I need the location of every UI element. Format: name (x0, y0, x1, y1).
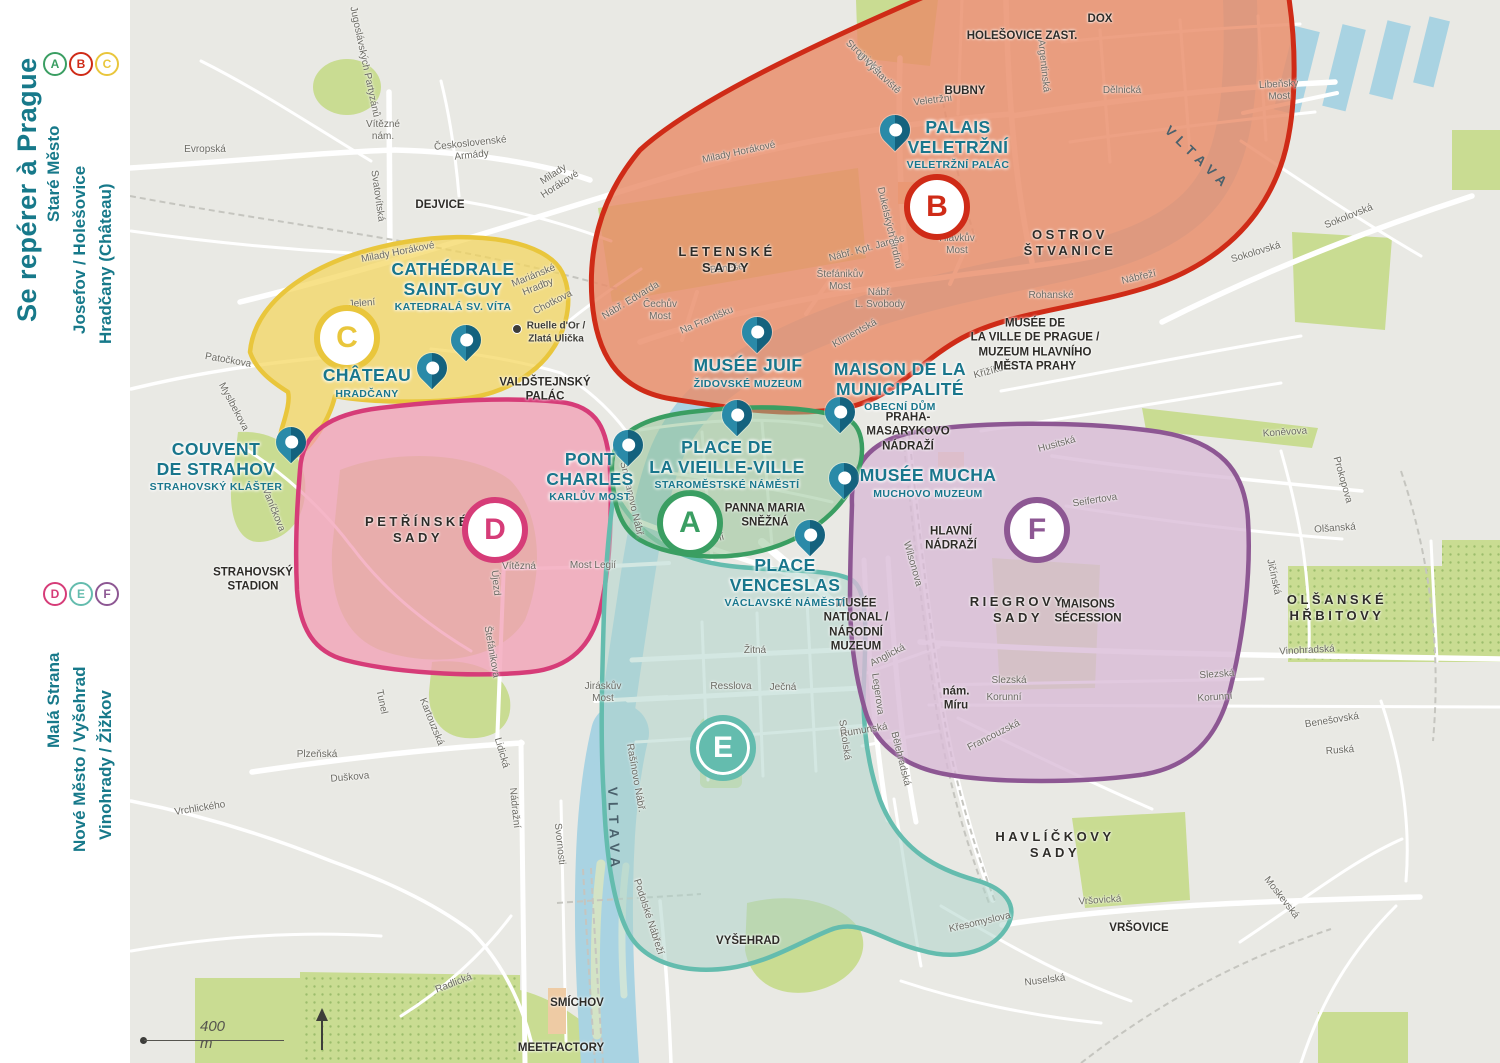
street-label: Vítězné nám. (366, 119, 400, 143)
poi-subtitle: HRADČANY (323, 388, 411, 400)
street-label: Resslova (710, 681, 751, 693)
legend-badge-e: E (69, 582, 93, 606)
street-label: Evropská (184, 144, 226, 156)
street-label: Žitná (744, 645, 766, 657)
place-label: RIEGROVY SADY (970, 594, 1067, 627)
legend-label-vinohrady-zizkov: Vinohrady / Žižkov (96, 690, 116, 840)
zone-badge-d: D (462, 497, 528, 563)
poi-name: MAISON DE LA MUNICIPALITÉ (834, 360, 966, 399)
street-label-bridge: Jiráskův Most (585, 681, 622, 705)
place-label: nám. Míru (943, 685, 970, 714)
poi-maison-municipalite: MAISON DE LA MUNICIPALITÉOBECNÍ DŮM (834, 360, 966, 413)
poi-subtitle: VÁCLAVSKÉ NÁMĚSTÍ (725, 597, 846, 609)
poi-musee-juif: MUSÉE JUIFŽIDOVSKÉ MUZEUM (693, 356, 802, 390)
street-label: Plzeňská (297, 749, 338, 761)
street-label: Slezská (991, 675, 1026, 687)
place-label: DOX (1088, 12, 1113, 26)
poi-subtitle: MUCHOVO MUZEUM (860, 488, 997, 500)
poi-subtitle: OBECNÍ DŮM (834, 401, 966, 413)
legend-badge-c: C (95, 52, 119, 76)
scale-label: 400 m (200, 1018, 225, 1052)
zone-badge-d-letter: D (484, 513, 506, 547)
poi-musee-mucha: MUSÉE MUCHAMUCHOVO MUZEUM (860, 466, 997, 500)
poi-name: MUSÉE JUIF (693, 356, 802, 376)
place-label: VRŠOVICE (1109, 921, 1168, 935)
street-label: Vítězná (502, 561, 536, 573)
poi-name: COUVENT DE STRAHOV (150, 440, 283, 479)
base-map (0, 0, 1500, 1063)
legend-badge-a: A (43, 52, 67, 76)
poi-palais-veletrzni: PALAIS VELETRŽNÍVELETRŽNÍ PALÁC (907, 118, 1010, 171)
legend-label-hradcany: Hradčany (Château) (96, 183, 116, 344)
zone-badge-e-letter: E (713, 731, 733, 765)
place-label: MAISONS SÉCESSION (1054, 598, 1121, 627)
zone-badge-f-letter: F (1028, 513, 1046, 547)
poi-name: CHÂTEAU (323, 366, 411, 386)
place-label: HAVLÍČKOVY SADY (995, 829, 1114, 862)
street-label: Ruská (1325, 744, 1354, 758)
place-label: STRAHOVSKÝ STADION (213, 566, 293, 595)
place-label: HLAVNÍ NÁDRAŽÍ (925, 525, 977, 554)
legend-label-mala-strana: Malá Strana (44, 653, 64, 748)
street-label: Dělnická (1103, 85, 1141, 97)
zone-badge-a: A (657, 490, 723, 556)
legend-label-stare-mesto: Staré Město (44, 126, 64, 222)
place-label: BUBNY (945, 84, 986, 98)
place-label: PRAHA- MASARYKOVO NÁDRAŽÍ (866, 410, 949, 453)
poi-subtitle: KARLŮV MOST (546, 491, 633, 503)
map-title: Se repérer à Prague (12, 57, 43, 322)
river-label-vltava: VLTAVA (605, 787, 623, 873)
place-label: DEJVICE (415, 198, 464, 212)
legend-badge-b: B (69, 52, 93, 76)
north-arrow-shaft (321, 1020, 323, 1050)
poi-name: PLACE VENCESLAS (725, 556, 846, 595)
street-label: Korunní (1197, 691, 1233, 705)
place-label-golden-lane: Ruelle d'Or / Zlatá Ulička (527, 321, 586, 346)
golden-lane-dot (512, 324, 522, 334)
poi-subtitle: ŽIDOVSKÉ MUZEUM (693, 378, 802, 390)
poi-vieille-ville: PLACE DE LA VIEILLE-VILLESTAROMĚSTSKÉ NÁ… (649, 438, 804, 491)
place-label: PETŘÍNSKÉ SADY (365, 514, 471, 547)
poi-name: PALAIS VELETRŽNÍ (907, 118, 1010, 157)
place-label: PANNA MARIA SNĚŽNÁ (725, 502, 806, 531)
place-label: MUSÉE DE LA VILLE DE PRAGUE / MUZEUM HLA… (971, 316, 1100, 374)
place-label: OSTROV ŠTVANICE (1024, 227, 1117, 260)
street-label: Ječná (770, 682, 797, 694)
poi-couvent-strahov: COUVENT DE STRAHOVSTRAHOVSKÝ KLÁŠTER (150, 440, 283, 493)
legend-label-josefov-holesovice: Josefov / Holešovice (70, 166, 90, 334)
zone-badge-a-letter: A (679, 506, 701, 540)
poi-pont-charles: PONT CHARLESKARLŮV MOST (546, 450, 633, 503)
poi-name: MUSÉE MUCHA (860, 466, 997, 486)
poi-subtitle: STRAHOVSKÝ KLÁŠTER (150, 481, 283, 493)
street-label: Most Legií (570, 560, 616, 572)
street-label: Nábř. L. Svobody (855, 287, 905, 311)
poi-chateau: CHÂTEAUHRADČANY (323, 366, 411, 400)
poi-name: PLACE DE LA VIEILLE-VILLE (649, 438, 804, 477)
street-label-bridge: Čechův Most (643, 299, 677, 323)
place-label: OLŠANSKÉ HŘBITOVY (1287, 592, 1387, 625)
poi-name: CATHÉDRALE SAINT-GUY (391, 260, 514, 299)
zone-badge-b: B (904, 174, 970, 240)
place-label: VALDŠTEJNSKÝ PALÁC (499, 376, 590, 405)
poi-subtitle: STAROMĚSTSKÉ NÁMĚSTÍ (649, 479, 804, 491)
legend-label-nove-mesto-vysehrad: Nové Město / Vyšehrad (70, 667, 90, 853)
poi-subtitle: VELETRŽNÍ PALÁC (907, 159, 1010, 171)
legend-badge-d: D (43, 582, 67, 606)
zone-badge-c-letter: C (336, 321, 358, 355)
poi-cathedrale-saint-guy: CATHÉDRALE SAINT-GUYKATEDRALÁ SV. VÍTA (391, 260, 514, 313)
poi-place-venceslas: PLACE VENCESLASVÁCLAVSKÉ NÁMĚSTÍ (725, 556, 846, 609)
zone-badge-b-letter: B (926, 190, 948, 224)
poi-name: PONT CHARLES (546, 450, 633, 489)
street-label: Rohanské (1028, 290, 1073, 302)
legend-badge-f: F (95, 582, 119, 606)
place-label: HOLEŠOVICE ZAST. (967, 29, 1078, 43)
place-label: VYŠEHRAD (716, 934, 780, 948)
place-label: LETENSKÉ SADY (678, 244, 775, 277)
place-label: MEETFACTORY (518, 1041, 604, 1055)
street-label-bridge: Libeňský Most (1259, 78, 1300, 104)
poi-subtitle: KATEDRALÁ SV. VÍTA (391, 301, 514, 313)
zone-badge-f: F (1004, 497, 1070, 563)
street-label: Újezd (488, 570, 503, 597)
zone-badge-e: E (690, 715, 756, 781)
street-label: Slezská (1199, 668, 1235, 682)
legend-sidebar: Se repérer à Prague A B C Staré Město Jo… (0, 0, 130, 1063)
place-label: SMÍCHOV (550, 996, 604, 1010)
zone-badge-c: C (314, 305, 380, 371)
prague-orientation-map: Se repérer à Prague A B C Staré Město Jo… (0, 0, 1500, 1063)
street-label: Korunní (986, 692, 1021, 704)
